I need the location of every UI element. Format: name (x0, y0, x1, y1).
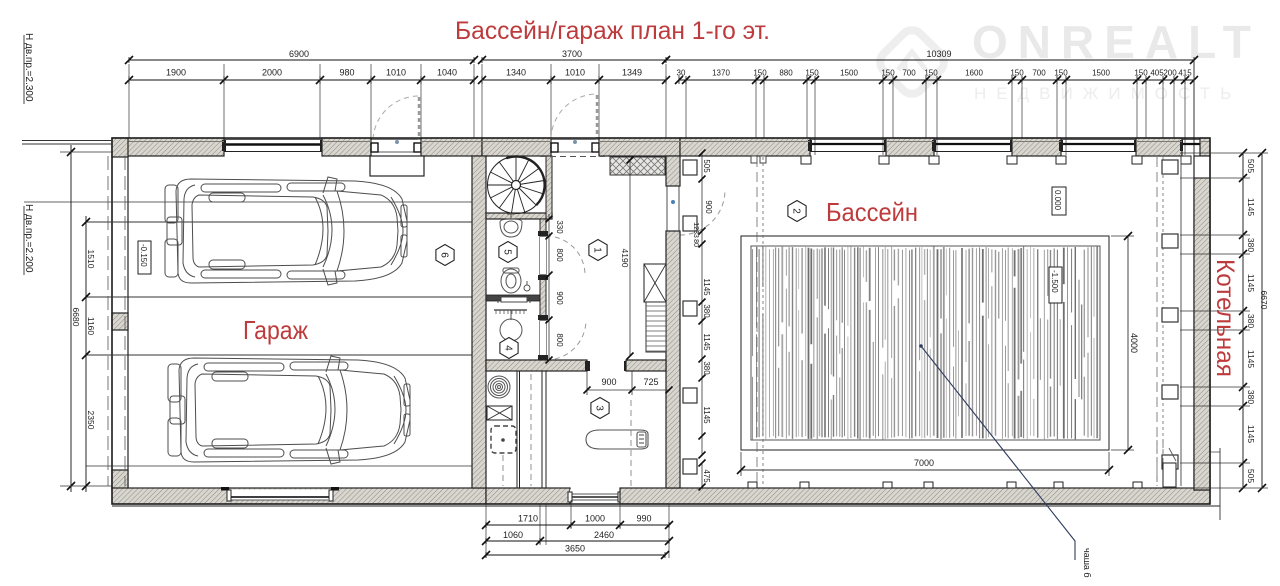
svg-text:725: 725 (643, 377, 658, 387)
svg-text:1500: 1500 (840, 69, 858, 78)
svg-text:1010: 1010 (386, 68, 406, 78)
svg-text:Н дв.пр.=2.200: Н дв.пр.=2.200 (23, 204, 34, 273)
svg-text:200: 200 (1163, 69, 1177, 78)
svg-text:700: 700 (1032, 69, 1046, 78)
svg-text:Н дв.пр.=2.300: Н дв.пр.=2.300 (23, 33, 34, 102)
svg-text:4190: 4190 (620, 249, 630, 268)
svg-text:380: 380 (702, 361, 711, 375)
svg-text:1370: 1370 (712, 69, 730, 78)
svg-text:2350: 2350 (86, 411, 96, 430)
svg-text:150: 150 (1010, 69, 1024, 78)
svg-text:900: 900 (704, 200, 713, 214)
svg-text:1710: 1710 (518, 514, 538, 524)
svg-text:Гараж: Гараж (243, 315, 309, 345)
svg-text:1349: 1349 (622, 68, 642, 78)
svg-text:1900: 1900 (166, 68, 186, 78)
svg-text:4: 4 (503, 345, 514, 351)
svg-text:150: 150 (753, 69, 767, 78)
svg-text:150: 150 (1134, 69, 1148, 78)
svg-text:330: 330 (555, 220, 564, 234)
svg-text:1145: 1145 (702, 333, 711, 351)
svg-text:80: 80 (692, 239, 699, 247)
svg-text:505: 505 (702, 159, 711, 173)
svg-text:10309: 10309 (926, 49, 951, 59)
svg-text:380: 380 (1246, 390, 1256, 404)
svg-text:-0.150: -0.150 (139, 244, 148, 267)
svg-text:1: 1 (592, 247, 603, 253)
svg-text:2: 2 (791, 208, 802, 214)
svg-text:2460: 2460 (594, 530, 614, 540)
svg-text:800: 800 (555, 333, 564, 347)
svg-text:1010: 1010 (565, 68, 585, 78)
svg-text:6680: 6680 (71, 308, 81, 327)
svg-text:1340: 1340 (506, 68, 526, 78)
svg-text:900: 900 (555, 291, 564, 305)
svg-text:1145: 1145 (702, 278, 711, 296)
svg-text:4000: 4000 (1129, 333, 1139, 353)
svg-text:405: 405 (1150, 69, 1164, 78)
svg-text:1145: 1145 (1246, 425, 1256, 444)
svg-text:0.000: 0.000 (1053, 190, 1062, 211)
svg-text:1145: 1145 (1246, 274, 1256, 293)
svg-text:НЕДВИЖИМОСТЬ: НЕДВИЖИМОСТЬ (974, 84, 1241, 103)
svg-text:150: 150 (805, 69, 819, 78)
svg-text:1510: 1510 (86, 250, 96, 269)
svg-text:чаша б: чаша б (1082, 548, 1092, 578)
svg-text:3: 3 (594, 405, 605, 411)
svg-text:1500: 1500 (1092, 69, 1110, 78)
svg-text:800: 800 (555, 248, 564, 262)
svg-text:980: 980 (339, 68, 354, 78)
svg-text:380: 380 (1246, 314, 1256, 328)
svg-text:1600: 1600 (965, 69, 983, 78)
svg-text:Бассейн: Бассейн (826, 197, 918, 227)
svg-text:150: 150 (1054, 69, 1068, 78)
svg-text:2000: 2000 (262, 68, 282, 78)
svg-text:6670: 6670 (1259, 291, 1269, 310)
svg-text:700: 700 (902, 69, 916, 78)
svg-text:Котельная: Котельная (1211, 259, 1239, 377)
svg-text:380: 380 (1246, 238, 1256, 252)
svg-text:Бассейн/гараж план 1-го эт.: Бассейн/гараж план 1-го эт. (455, 17, 770, 45)
svg-text:1160: 1160 (86, 317, 96, 336)
svg-text:1145: 1145 (1246, 350, 1256, 369)
svg-text:880: 880 (779, 69, 793, 78)
svg-text:3700: 3700 (562, 49, 582, 59)
svg-text:150: 150 (881, 69, 895, 78)
svg-text:990: 990 (636, 514, 651, 524)
svg-text:1000: 1000 (585, 514, 605, 524)
svg-text:1040: 1040 (437, 68, 457, 78)
svg-text:900: 900 (601, 377, 616, 387)
svg-text:1060: 1060 (503, 530, 523, 540)
svg-text:380: 380 (702, 304, 711, 318)
svg-text:3650: 3650 (565, 544, 585, 554)
svg-text:150: 150 (924, 69, 938, 78)
svg-text:1233: 1233 (692, 222, 699, 238)
svg-text:5: 5 (502, 249, 513, 255)
svg-text:505: 505 (1246, 159, 1256, 173)
svg-text:505: 505 (1246, 469, 1256, 483)
svg-text:475: 475 (702, 469, 711, 483)
svg-text:6900: 6900 (289, 49, 309, 59)
svg-text:-1.500: -1.500 (1050, 270, 1059, 293)
svg-text:30: 30 (677, 69, 686, 78)
svg-text:415: 415 (1178, 69, 1192, 78)
svg-text:1145: 1145 (1246, 198, 1256, 217)
svg-text:7000: 7000 (914, 458, 934, 468)
svg-text:1145: 1145 (702, 406, 711, 424)
svg-text:6: 6 (439, 252, 450, 258)
